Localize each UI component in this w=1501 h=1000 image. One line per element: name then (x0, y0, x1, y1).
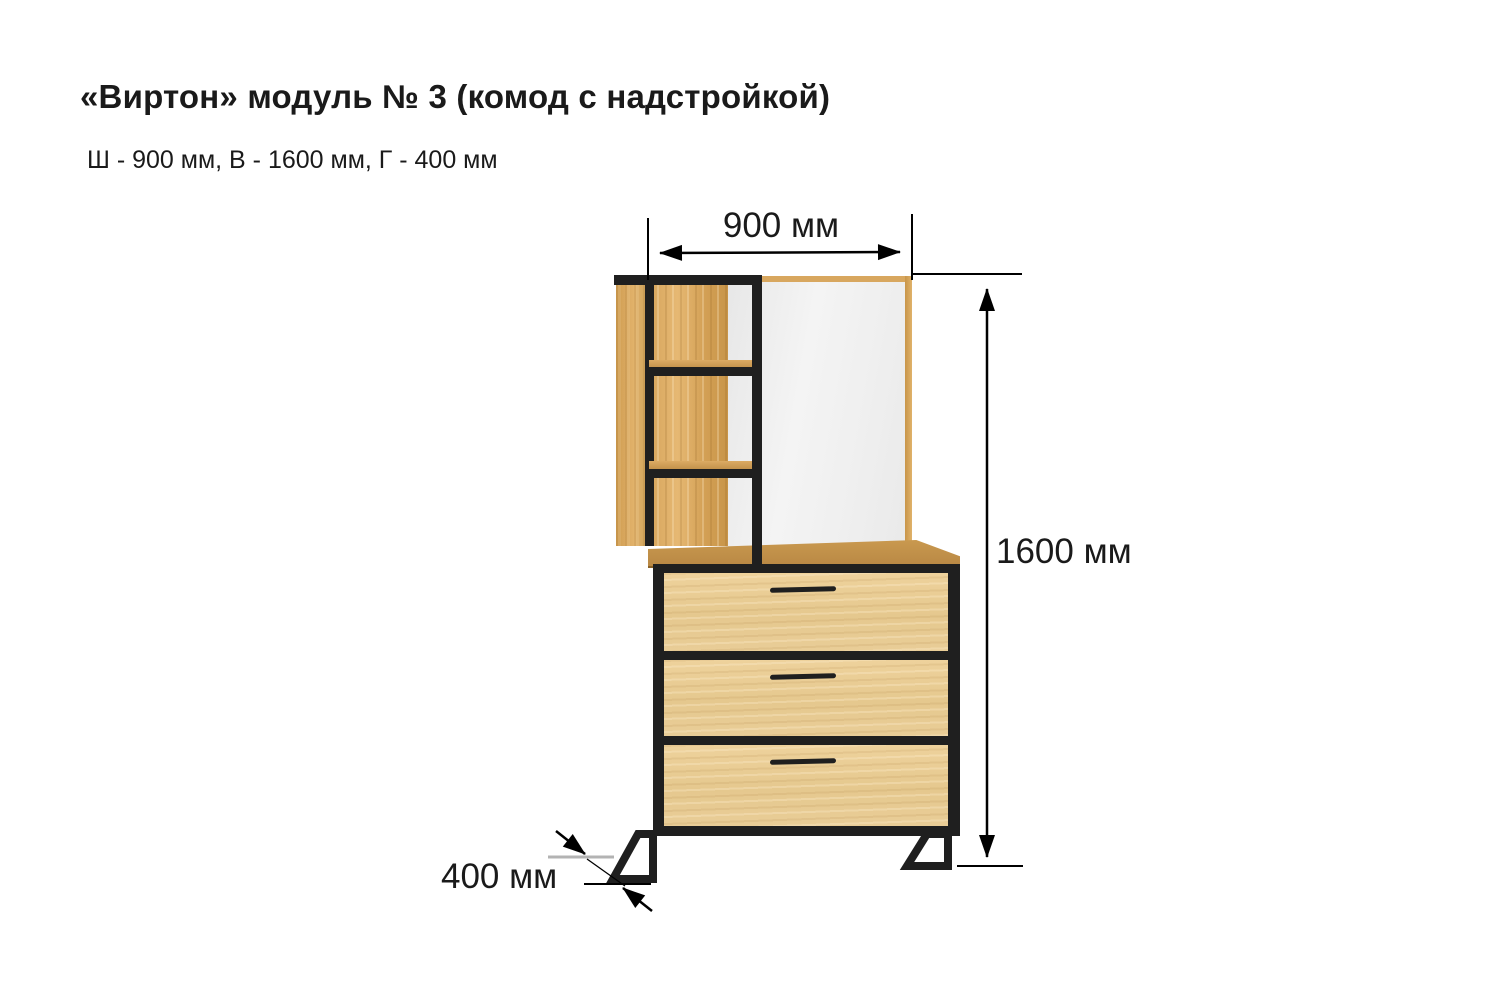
height-dimension-label: 1600 мм (996, 532, 1132, 572)
width-arrow-line (660, 252, 900, 253)
metal-legs (613, 834, 948, 879)
depth-arrow-bottom (623, 888, 652, 911)
width-dimension-label: 900 мм (655, 206, 907, 246)
depth-arrow-top (556, 831, 585, 854)
page-root: «Виртон» модуль № 3 (комод с надстройкой… (0, 0, 1501, 1000)
left-leg (613, 834, 653, 879)
dimension-overlay (0, 0, 1501, 1000)
right-leg (907, 834, 948, 866)
depth-dimension-label: 400 мм (441, 857, 557, 897)
